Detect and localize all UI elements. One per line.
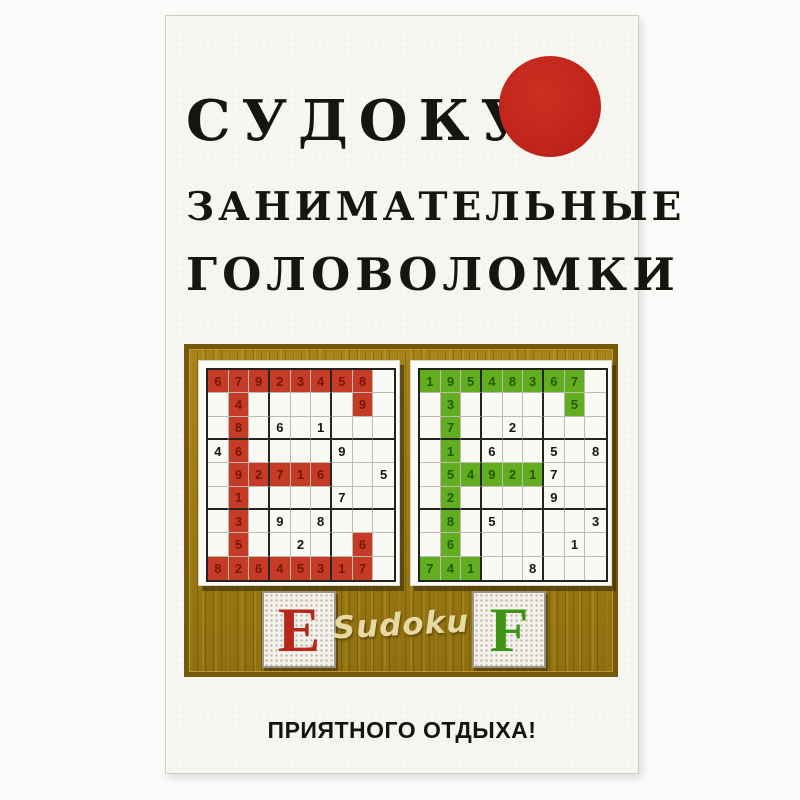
sudoku-cell bbox=[270, 487, 291, 510]
wood-panel: 67923458498614699271651739852682645317 1… bbox=[184, 344, 618, 677]
sudoku-cell: 8 bbox=[585, 440, 606, 463]
sudoku-cell: 6 bbox=[270, 417, 291, 440]
sudoku-cell: 8 bbox=[441, 510, 462, 533]
sudoku-cell: 4 bbox=[311, 370, 332, 393]
sudoku-cell: 7 bbox=[332, 487, 353, 510]
sudoku-cell bbox=[565, 463, 586, 486]
sudoku-cell bbox=[249, 393, 270, 416]
sudoku-cell bbox=[353, 463, 374, 486]
sudoku-cell bbox=[311, 440, 332, 463]
sudoku-cell bbox=[420, 417, 441, 440]
sudoku-cell: 2 bbox=[503, 463, 524, 486]
sudoku-cell: 3 bbox=[523, 370, 544, 393]
sudoku-cell bbox=[420, 463, 441, 486]
sudoku-cell: 2 bbox=[503, 417, 524, 440]
sudoku-cell: 2 bbox=[441, 487, 462, 510]
sudoku-cell: 7 bbox=[441, 417, 462, 440]
sudoku-cell: 8 bbox=[311, 510, 332, 533]
sudoku-cell bbox=[311, 487, 332, 510]
sudoku-cell bbox=[482, 557, 503, 580]
sudoku-cell: 3 bbox=[585, 510, 606, 533]
sudoku-cell bbox=[311, 533, 332, 556]
sudoku-cell bbox=[332, 463, 353, 486]
sudoku-cell: 8 bbox=[503, 370, 524, 393]
sudoku-cell bbox=[291, 417, 312, 440]
sudoku-cell: 1 bbox=[523, 463, 544, 486]
plaque-letter-e: E bbox=[278, 598, 321, 662]
sudoku-cell: 4 bbox=[441, 557, 462, 580]
sudoku-cell bbox=[353, 510, 374, 533]
sudoku-cell bbox=[208, 417, 229, 440]
sudoku-cell bbox=[523, 440, 544, 463]
sudoku-cell bbox=[585, 533, 606, 556]
sudoku-cell: 3 bbox=[291, 370, 312, 393]
tagline: ПРИЯТНОГО ОТДЫХА! bbox=[166, 717, 638, 744]
sudoku-cell bbox=[503, 533, 524, 556]
title-line-1: СУДОКУ bbox=[186, 88, 537, 154]
sudoku-cell bbox=[353, 487, 374, 510]
sudoku-cell: 8 bbox=[208, 557, 229, 580]
sudoku-cell bbox=[482, 417, 503, 440]
sudoku-cell bbox=[585, 417, 606, 440]
title-line-2: ЗАНИМАТЕЛЬНЫЕ bbox=[186, 184, 685, 230]
sudoku-cell bbox=[270, 440, 291, 463]
sudoku-cell bbox=[332, 533, 353, 556]
sudoku-cell bbox=[332, 393, 353, 416]
sudoku-cell: 6 bbox=[311, 463, 332, 486]
sudoku-cell bbox=[373, 533, 394, 556]
sudoku-script-label: Sudoku bbox=[320, 603, 482, 647]
sudoku-cell bbox=[461, 487, 482, 510]
sudoku-cell: 1 bbox=[311, 417, 332, 440]
sudoku-cell bbox=[482, 533, 503, 556]
sudoku-cell: 7 bbox=[420, 557, 441, 580]
sudoku-cell: 5 bbox=[229, 533, 250, 556]
sudoku-cell bbox=[544, 510, 565, 533]
sudoku-cell bbox=[523, 487, 544, 510]
sudoku-cell: 4 bbox=[461, 463, 482, 486]
sudoku-cell: 3 bbox=[311, 557, 332, 580]
sudoku-cell: 4 bbox=[229, 393, 250, 416]
sudoku-cell bbox=[420, 487, 441, 510]
sudoku-cell: 5 bbox=[482, 510, 503, 533]
sudoku-cell bbox=[461, 393, 482, 416]
sudoku-cell bbox=[208, 393, 229, 416]
sudoku-cell: 6 bbox=[482, 440, 503, 463]
sudoku-cell: 3 bbox=[441, 393, 462, 416]
sudoku-cell bbox=[544, 533, 565, 556]
sudoku-cell bbox=[373, 393, 394, 416]
sudoku-cell: 1 bbox=[565, 533, 586, 556]
sudoku-cell: 9 bbox=[249, 370, 270, 393]
plaque-letter-f: F bbox=[489, 598, 528, 662]
sudoku-cell: 9 bbox=[332, 440, 353, 463]
sudoku-grid-letter-e: 67923458498614699271651739852682645317 bbox=[206, 368, 396, 582]
sudoku-cell bbox=[353, 417, 374, 440]
sudoku-cell bbox=[373, 417, 394, 440]
sudoku-cell: 6 bbox=[544, 370, 565, 393]
sudoku-cell bbox=[249, 440, 270, 463]
sudoku-cell: 8 bbox=[229, 417, 250, 440]
sudoku-cell bbox=[373, 510, 394, 533]
sudoku-card-right: 195483673572165854921729853617418 bbox=[410, 360, 612, 586]
sudoku-cell: 8 bbox=[353, 370, 374, 393]
sudoku-grid-letter-f: 195483673572165854921729853617418 bbox=[418, 368, 608, 582]
sudoku-cell bbox=[503, 393, 524, 416]
sudoku-cell: 5 bbox=[544, 440, 565, 463]
sudoku-cell bbox=[585, 463, 606, 486]
sudoku-cell bbox=[208, 487, 229, 510]
sudoku-cell: 6 bbox=[441, 533, 462, 556]
sudoku-cell: 8 bbox=[523, 557, 544, 580]
sudoku-cell bbox=[461, 440, 482, 463]
sudoku-cell: 3 bbox=[229, 510, 250, 533]
sudoku-cell bbox=[461, 417, 482, 440]
sudoku-cell bbox=[544, 393, 565, 416]
sudoku-cell bbox=[482, 393, 503, 416]
sudoku-cell: 7 bbox=[270, 463, 291, 486]
sudoku-cell: 5 bbox=[332, 370, 353, 393]
sudoku-cell bbox=[291, 440, 312, 463]
sudoku-cell: 6 bbox=[249, 557, 270, 580]
sudoku-cell: 4 bbox=[270, 557, 291, 580]
sudoku-cell bbox=[565, 510, 586, 533]
sudoku-cell: 5 bbox=[291, 557, 312, 580]
sudoku-cell: 1 bbox=[461, 557, 482, 580]
sudoku-cell bbox=[373, 440, 394, 463]
sudoku-cell: 9 bbox=[482, 463, 503, 486]
sudoku-cell: 9 bbox=[441, 370, 462, 393]
sudoku-cell bbox=[208, 463, 229, 486]
sudoku-cell: 7 bbox=[544, 463, 565, 486]
sudoku-cell bbox=[420, 393, 441, 416]
sudoku-cell: 9 bbox=[353, 393, 374, 416]
sudoku-cell bbox=[523, 393, 544, 416]
sudoku-cell: 4 bbox=[482, 370, 503, 393]
sudoku-cell bbox=[523, 417, 544, 440]
sudoku-cell bbox=[373, 487, 394, 510]
sudoku-cell: 9 bbox=[270, 510, 291, 533]
sudoku-cell bbox=[585, 370, 606, 393]
sudoku-cell bbox=[291, 487, 312, 510]
rising-sun-icon bbox=[499, 56, 601, 157]
sudoku-cell: 6 bbox=[208, 370, 229, 393]
sudoku-cell bbox=[503, 557, 524, 580]
sudoku-cell: 5 bbox=[441, 463, 462, 486]
sudoku-cell bbox=[585, 487, 606, 510]
sudoku-cell: 1 bbox=[229, 487, 250, 510]
sudoku-cell bbox=[461, 533, 482, 556]
sudoku-cell bbox=[565, 440, 586, 463]
sudoku-cell bbox=[311, 393, 332, 416]
sudoku-cell: 2 bbox=[291, 533, 312, 556]
sudoku-cell bbox=[544, 557, 565, 580]
sudoku-cell bbox=[544, 417, 565, 440]
sudoku-cell bbox=[291, 393, 312, 416]
sudoku-cell bbox=[523, 510, 544, 533]
sudoku-cell bbox=[249, 487, 270, 510]
sudoku-cell: 1 bbox=[420, 370, 441, 393]
sudoku-cell bbox=[249, 510, 270, 533]
sudoku-cell: 5 bbox=[373, 463, 394, 486]
sudoku-cell bbox=[585, 557, 606, 580]
sudoku-cell bbox=[270, 393, 291, 416]
sudoku-cell: 7 bbox=[353, 557, 374, 580]
sudoku-cell: 2 bbox=[229, 557, 250, 580]
sudoku-cell: 1 bbox=[291, 463, 312, 486]
sudoku-cell: 9 bbox=[229, 463, 250, 486]
sudoku-cell bbox=[420, 510, 441, 533]
sudoku-cell: 2 bbox=[249, 463, 270, 486]
sudoku-cell bbox=[461, 510, 482, 533]
sudoku-cell bbox=[332, 510, 353, 533]
sudoku-cell bbox=[482, 487, 503, 510]
sudoku-cell bbox=[565, 557, 586, 580]
sudoku-cell bbox=[373, 557, 394, 580]
sudoku-cell bbox=[291, 510, 312, 533]
sudoku-cell: 7 bbox=[565, 370, 586, 393]
title-line-3: ГОЛОВОЛОМКИ bbox=[186, 248, 680, 301]
sudoku-cell bbox=[503, 510, 524, 533]
sudoku-cell: 1 bbox=[332, 557, 353, 580]
sudoku-cell bbox=[503, 440, 524, 463]
sudoku-cell bbox=[420, 440, 441, 463]
sudoku-cell bbox=[270, 533, 291, 556]
sudoku-cell: 6 bbox=[353, 533, 374, 556]
sudoku-cell: 7 bbox=[229, 370, 250, 393]
sudoku-cell bbox=[353, 440, 374, 463]
sudoku-cell bbox=[208, 510, 229, 533]
sudoku-cell: 4 bbox=[208, 440, 229, 463]
sudoku-cell bbox=[249, 417, 270, 440]
sudoku-cell bbox=[585, 393, 606, 416]
sudoku-cell: 5 bbox=[565, 393, 586, 416]
sudoku-cell bbox=[332, 417, 353, 440]
sudoku-cell bbox=[565, 487, 586, 510]
sudoku-cell bbox=[565, 417, 586, 440]
sudoku-card-left: 67923458498614699271651739852682645317 bbox=[198, 360, 400, 586]
sudoku-cell bbox=[208, 533, 229, 556]
book-cover-photo: СУДОКУ ЗАНИМАТЕЛЬНЫЕ ГОЛОВОЛОМКИ 6792345… bbox=[0, 0, 800, 800]
sudoku-cell: 5 bbox=[461, 370, 482, 393]
halftone-plaque-f: F bbox=[472, 591, 546, 668]
sudoku-cell bbox=[420, 533, 441, 556]
sudoku-cell bbox=[503, 487, 524, 510]
book-cover: СУДОКУ ЗАНИМАТЕЛЬНЫЕ ГОЛОВОЛОМКИ 6792345… bbox=[165, 15, 639, 774]
sudoku-cell bbox=[523, 533, 544, 556]
sudoku-cell bbox=[373, 370, 394, 393]
sudoku-cell: 6 bbox=[229, 440, 250, 463]
sudoku-cell bbox=[249, 533, 270, 556]
sudoku-cell: 1 bbox=[441, 440, 462, 463]
sudoku-cell: 9 bbox=[544, 487, 565, 510]
sudoku-cell: 2 bbox=[270, 370, 291, 393]
